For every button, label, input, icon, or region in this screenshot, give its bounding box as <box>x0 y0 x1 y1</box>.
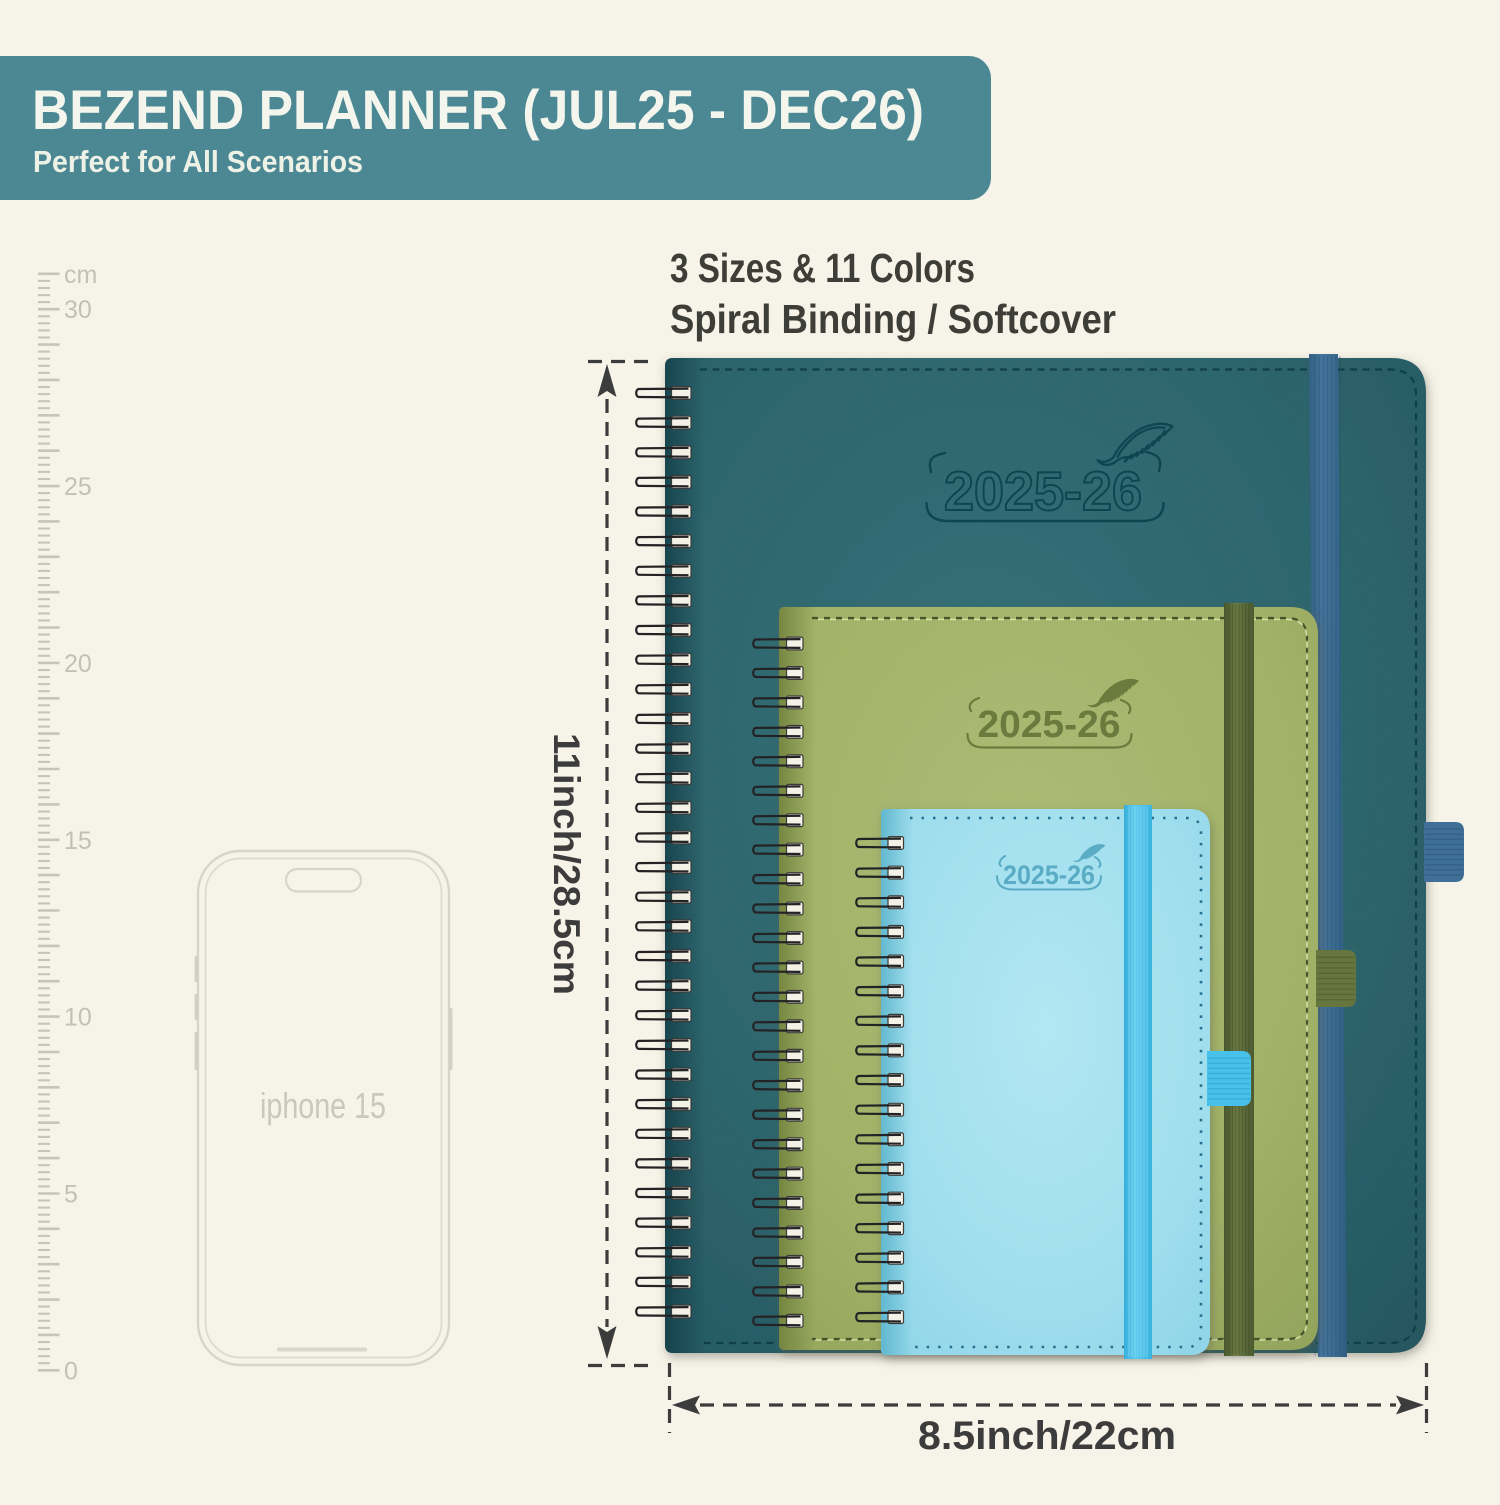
svg-text:BEZEND PLANNER (JUL25 - DEC26): BEZEND PLANNER (JUL25 - DEC26) <box>32 78 924 141</box>
svg-text:2025-26: 2025-26 <box>1003 860 1095 890</box>
svg-text:iphone 15: iphone 15 <box>260 1085 386 1126</box>
svg-text:15: 15 <box>64 827 92 855</box>
svg-text:30: 30 <box>64 296 92 324</box>
svg-text:10: 10 <box>64 1004 92 1032</box>
svg-text:Spiral Binding / Softcover: Spiral Binding / Softcover <box>670 296 1116 342</box>
svg-text:25: 25 <box>64 473 92 501</box>
svg-text:5: 5 <box>64 1181 78 1209</box>
svg-text:cm: cm <box>64 261 97 289</box>
svg-text:2025-26: 2025-26 <box>978 704 1121 746</box>
svg-text:11inch/28.5cm: 11inch/28.5cm <box>546 733 587 995</box>
svg-text:20: 20 <box>64 650 92 678</box>
svg-text:0: 0 <box>64 1357 78 1385</box>
svg-text:8.5inch/22cm: 8.5inch/22cm <box>918 1414 1176 1458</box>
svg-text:3 Sizes & 11 Colors: 3 Sizes & 11 Colors <box>670 245 975 291</box>
svg-text:2025-26: 2025-26 <box>944 460 1142 522</box>
svg-text:Perfect for All Scenarios: Perfect for All Scenarios <box>33 144 363 179</box>
